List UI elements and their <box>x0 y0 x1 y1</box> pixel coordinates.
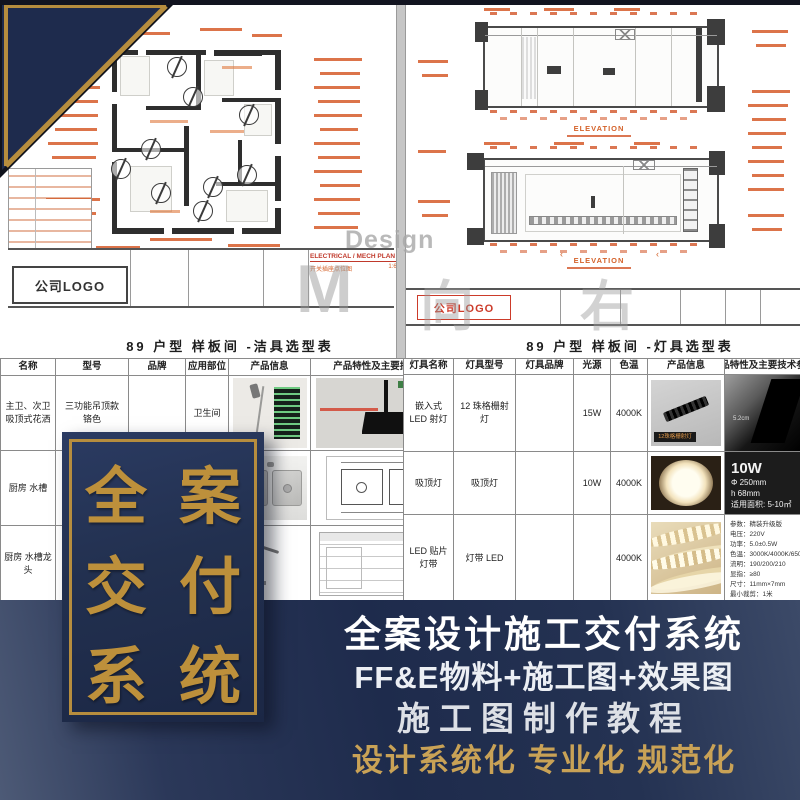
cell-product-photo <box>648 452 725 514</box>
cell-model: 灯带 LED <box>454 515 516 601</box>
cell-model: 12 珠格栅射灯 <box>454 375 516 451</box>
footer-text-block: 全案设计施工交付系统 FF&E物料+施工图+效果图 施工图制作教程 设计系统化 … <box>288 612 800 782</box>
profile-size-label: 5.2cm <box>733 413 749 426</box>
plan-annotation-mark <box>748 188 784 191</box>
plan-wall-segment <box>275 50 281 90</box>
ceiling-lamp-photo <box>651 456 721 510</box>
plan-annotation-mark <box>418 200 450 203</box>
plan-wall-segment <box>112 228 164 234</box>
plan-annotation-mark <box>752 174 784 177</box>
company-logo-left: 公司LOGO <box>12 266 128 304</box>
plan-annotation-mark <box>314 142 360 145</box>
plan-annotation-mark <box>756 44 786 47</box>
col-header: 光源 <box>574 359 611 374</box>
cell-name: 嵌入式 LED 射灯 <box>404 375 454 451</box>
plan-fixture-symbol <box>239 105 259 125</box>
plan-wall-segment <box>275 98 281 144</box>
watermark-glyph: M <box>296 250 353 328</box>
plan-annotation-mark <box>752 90 790 93</box>
footer-line-3: 施工图制作教程 <box>288 698 800 740</box>
plan-annotation-mark <box>554 142 584 145</box>
titleblock-divider <box>188 250 189 306</box>
plan-annotation-mark <box>752 146 782 149</box>
plan-annotation-mark <box>634 142 660 145</box>
col-header: 品牌 <box>129 359 186 375</box>
cell-brand <box>516 452 574 514</box>
plan-annotation-mark <box>200 28 242 31</box>
banner-line: 交付 <box>76 536 282 626</box>
cell-feature-specs: 10W Φ 250mm h 68mm 适用面积: 5-10㎡ <box>725 452 800 514</box>
cell-product-photo: 12珠格栅射灯 <box>648 375 725 451</box>
footer-line-1: 全案设计施工交付系统 <box>288 612 800 658</box>
light-profile-photo: 5.2cm <box>725 375 800 451</box>
cell-feature-specs: 参数：精装升级版 电压：220V 功率：5.0±0.5W 色温：3000K/40… <box>725 515 800 601</box>
plan-annotation-mark <box>748 214 784 217</box>
plan-annotation-mark <box>252 34 282 37</box>
ref-arrow-icon: ‹ <box>560 249 563 259</box>
col-header: 产品信息 <box>648 359 725 374</box>
plan-wall-segment <box>172 228 234 234</box>
plan-annotation-mark <box>418 150 446 153</box>
plan-annotation-mark <box>318 212 360 215</box>
col-header: 型号 <box>56 359 129 375</box>
banner-line: 全案 <box>76 446 282 536</box>
plan-annotation-mark <box>748 104 788 107</box>
plan-annotation-mark <box>418 60 448 63</box>
titleblock-divider <box>130 250 131 306</box>
plan-annotation-mark <box>318 100 360 103</box>
cell-name: LED 贴片灯带 <box>404 515 454 601</box>
col-header: 灯具型号 <box>454 359 516 374</box>
elevation-drawing-2 <box>483 158 719 242</box>
top-edge <box>0 0 800 5</box>
col-header: 灯具名称 <box>404 359 454 374</box>
col-header: 产品信息 <box>229 359 311 375</box>
company-logo-left-label: 公司LOGO <box>35 276 105 295</box>
table-row: 嵌入式 LED 射灯 12 珠格栅射灯 15W 4000K 12珠格栅射灯 5.… <box>404 375 800 452</box>
plan-fixture-symbol <box>237 165 257 185</box>
cell-brand <box>516 375 574 451</box>
plan-annotation-mark <box>314 114 362 117</box>
plan-fixture-symbol <box>151 183 171 203</box>
cell-name: 厨房 水槽 <box>1 451 56 525</box>
plan-wall-segment <box>222 98 278 102</box>
elevation-label-1: ELEVATION <box>483 124 715 137</box>
col-header: 产品特性及主要技术参数 <box>725 359 800 374</box>
plan-fixture-symbol <box>193 201 213 221</box>
plan-wall-segment <box>275 156 281 201</box>
sanitary-table-title: 89 户型 样板间 -洁具选型表 <box>0 336 460 355</box>
watermark-design-text: Design <box>345 226 434 255</box>
plan-furniture <box>226 190 268 222</box>
cell-name: 吸顶灯 <box>404 452 454 514</box>
table-row: 吸顶灯 吸顶灯 10W 4000K 10W Φ 250mm h 68mm 适用面… <box>404 452 800 515</box>
ref-arrow-icon: ‹ <box>656 249 659 259</box>
grille-spotlight-photo: 12珠格栅射灯 <box>651 380 721 446</box>
titleblock-divider <box>263 250 264 306</box>
plan-annotation-mark <box>422 214 448 217</box>
plan-annotation-mark <box>318 156 360 159</box>
plan-annotation-mark <box>222 66 252 69</box>
cell-product-photo <box>648 515 725 601</box>
plan-annotation-mark <box>320 128 358 131</box>
elevation-drawing-1 <box>483 26 719 108</box>
plan-annotation-mark <box>752 228 782 231</box>
col-header: 灯具品牌 <box>516 359 574 374</box>
sanitary-header-row: 名称 型号 品牌 应用部位 产品信息 产品特性及主要技术参数 <box>1 359 460 376</box>
plan-annotation-mark <box>150 238 212 241</box>
col-header: 名称 <box>1 359 56 375</box>
plan-annotation-mark <box>748 132 786 135</box>
plan-wall-segment <box>184 126 189 206</box>
plan-fixture-symbol <box>183 87 203 107</box>
plan-annotation-mark <box>544 8 574 11</box>
cell-name: 厨房 水槽龙头 <box>1 526 56 601</box>
floorplan-legend <box>8 168 92 250</box>
cell-name: 主卫、次卫 吸顶式花洒 <box>1 376 56 450</box>
plan-annotation-mark <box>314 170 362 173</box>
footer-line-2: FF&E物料+施工图+效果图 <box>288 658 800 698</box>
cell-brand <box>516 515 574 601</box>
banner-line: 系统 <box>76 626 282 716</box>
plan-fixture-symbol <box>203 177 223 197</box>
lighting-header-row: 灯具名称 灯具型号 灯具品牌 光源 色温 产品信息 产品特性及主要技术参数 <box>404 359 800 375</box>
plan-annotation-mark <box>150 210 180 213</box>
lighting-table: 灯具名称 灯具型号 灯具品牌 光源 色温 产品信息 产品特性及主要技术参数 嵌入… <box>403 358 800 602</box>
plan-annotation-mark <box>748 160 784 163</box>
sheet-divider-bar <box>396 0 406 372</box>
watermark-glyph: 右 <box>580 262 634 341</box>
cell-model: 吸顶灯 <box>454 452 516 514</box>
table-row: LED 贴片灯带 灯带 LED 4000K 参数：精装升级版 电压：220V 功… <box>404 515 800 601</box>
col-header: 色温 <box>611 359 648 374</box>
plan-wall-segment <box>214 50 262 56</box>
plan-wall-segment <box>275 208 281 234</box>
plan-annotation-mark <box>484 8 510 11</box>
cell-feature-photo: 5.2cm <box>725 375 800 451</box>
plan-annotation-mark <box>314 58 362 61</box>
cell-cct: 4000K <box>611 515 648 601</box>
spotlight-caption: 12珠格栅射灯 <box>654 432 696 442</box>
vertical-banner: 全案 交付 系统 <box>62 432 264 722</box>
poster-canvas: 公司LOGO ELECTRICAL / MECH PLAN 开关插座点位图 1:… <box>0 0 800 800</box>
plan-annotation-mark <box>314 198 360 201</box>
plan-annotation-mark <box>422 74 448 77</box>
cell-source <box>574 515 611 601</box>
col-header: 应用部位 <box>186 359 229 375</box>
corner-triangle-decoration <box>0 0 178 178</box>
plan-annotation-mark <box>314 86 360 89</box>
footer-line-4: 设计系统化 专业化 规范化 <box>288 740 800 782</box>
plan-annotation-mark <box>320 184 360 187</box>
led-strip-photo <box>651 522 721 594</box>
plan-annotation-mark <box>320 72 360 75</box>
cell-source: 15W <box>574 375 611 451</box>
cell-cct: 4000K <box>611 375 648 451</box>
plan-annotation-mark <box>614 8 640 11</box>
watermark-glyph: 向 <box>420 262 474 341</box>
plan-annotation-mark <box>484 142 510 145</box>
cell-source: 10W <box>574 452 611 514</box>
cell-cct: 4000K <box>611 452 648 514</box>
plan-annotation-mark <box>228 244 280 247</box>
plan-annotation-mark <box>752 30 788 33</box>
plan-annotation-mark <box>210 130 244 133</box>
plan-annotation-mark <box>752 118 786 121</box>
